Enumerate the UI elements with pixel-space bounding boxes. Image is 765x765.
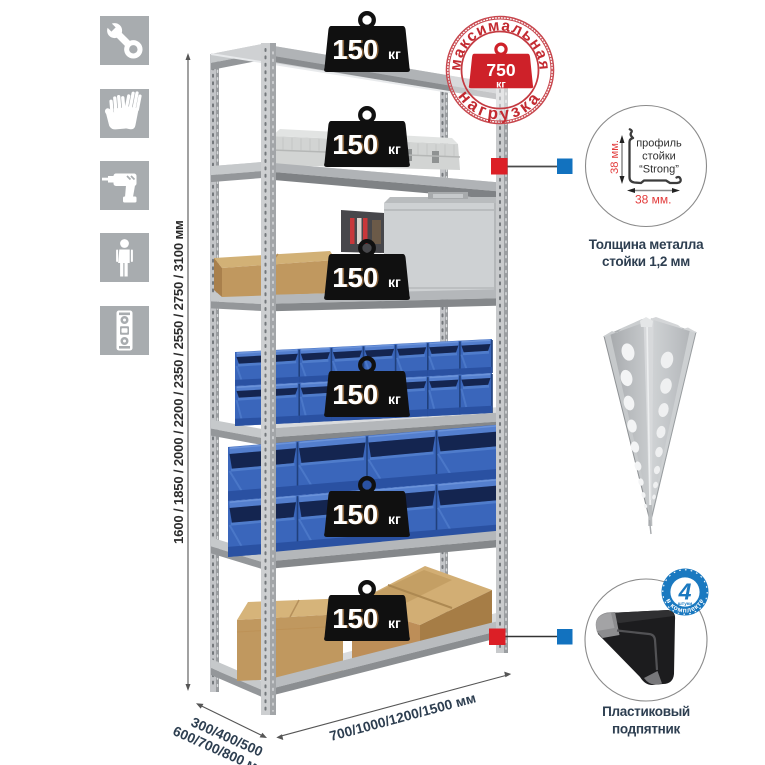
svg-text:750: 750 [486,60,515,80]
svg-text:150: 150 [332,34,378,65]
svg-text:кг: кг [388,46,401,62]
svg-text:кг: кг [388,141,401,157]
svg-text:150: 150 [332,499,378,530]
svg-text:38 мм.: 38 мм. [609,140,621,174]
svg-text:кг: кг [388,615,401,631]
svg-text:кг: кг [388,391,401,407]
svg-text:150: 150 [332,129,378,160]
svg-text:стойки: стойки [642,151,676,163]
svg-text:150: 150 [332,603,378,634]
svg-text:кг: кг [388,511,401,527]
svg-text:“Strong”: “Strong” [639,164,679,176]
svg-text:штуки: штуки [678,602,693,607]
svg-text:1600 / 1850 / 2000 / 2200 / 23: 1600 / 1850 / 2000 / 2200 / 2350 / 2550 … [171,220,186,544]
svg-text:38 мм.: 38 мм. [635,193,672,207]
svg-text:стойки 1,2 мм: стойки 1,2 мм [602,254,690,269]
svg-text:150: 150 [332,262,378,293]
svg-text:подпятник: подпятник [612,722,680,737]
svg-text:Толщина металла: Толщина металла [589,237,704,252]
svg-text:Пластиковый: Пластиковый [602,704,690,719]
svg-text:кг: кг [388,274,401,290]
svg-text:150: 150 [332,379,378,410]
svg-text:профиль: профиль [636,138,682,150]
svg-text:4: 4 [678,579,692,605]
svg-text:кг: кг [496,79,506,91]
